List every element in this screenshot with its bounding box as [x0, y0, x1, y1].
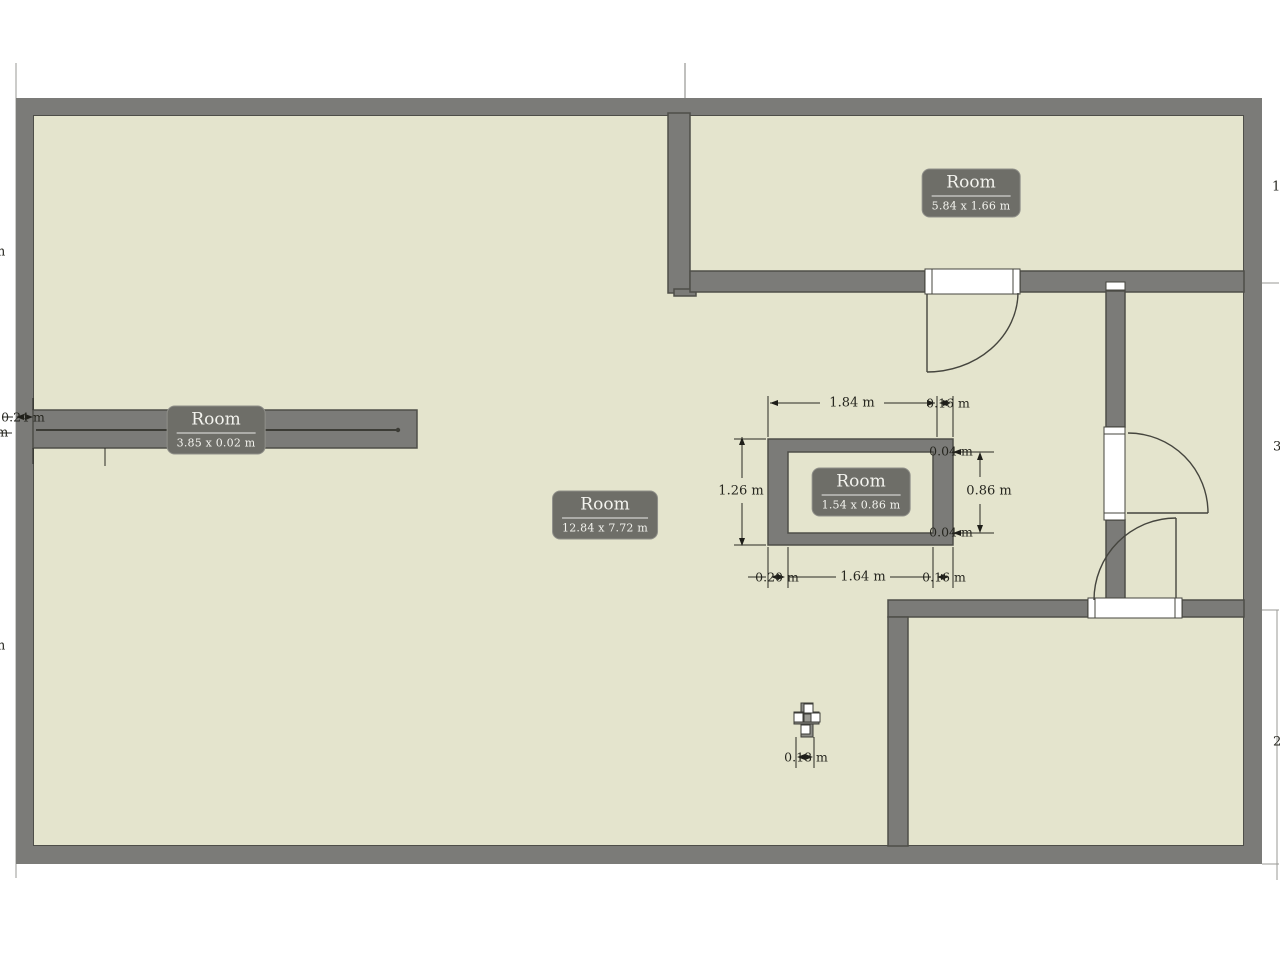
- wall-notch: [1106, 282, 1125, 290]
- room-name: Room: [177, 410, 256, 434]
- room-dimensions: 5.84 x 1.66 m: [932, 197, 1011, 213]
- dim-inner-right: 0.86 m: [966, 484, 1011, 499]
- room-dimensions: 1.54 x 0.86 m: [822, 496, 901, 512]
- edge-label-left-mid: m: [0, 426, 8, 441]
- dim-left-wall: 0.24 m: [1, 410, 45, 425]
- room-label-sliver[interactable]: Room 3.85 x 0.02 m: [167, 406, 266, 455]
- room-label-main[interactable]: Room 12.84 x 7.72 m: [552, 491, 658, 540]
- plan-viewport: Room 5.84 x 1.66 m Room 3.85 x 0.02 m Ro…: [0, 0, 1280, 960]
- dim-inner-bottom-left: 0.20 m: [755, 570, 799, 585]
- room-label-inner[interactable]: Room 1.54 x 0.86 m: [812, 468, 911, 517]
- dim-inner-right-bottom: 0.04 m: [929, 525, 973, 540]
- dim-inner-bottom-right: 0.16 m: [922, 570, 966, 585]
- room-name: Room: [562, 495, 648, 519]
- dim-inner-bottom: 1.64 m: [840, 570, 885, 585]
- edge-label-right-mid: 3: [1273, 440, 1280, 455]
- wall-bottomright-top-left: [888, 600, 1088, 617]
- dim-inner-top-right: 0.16 m: [926, 396, 970, 411]
- floor-main[interactable]: [33, 115, 1244, 846]
- room-name: Room: [932, 173, 1011, 197]
- room-dimensions: 12.84 x 7.72 m: [562, 519, 648, 535]
- wall-bottomright-left: [888, 617, 908, 846]
- wall-right-vertical-upper: [1106, 291, 1125, 427]
- dim-inner-left: 1.26 m: [718, 484, 763, 499]
- dim-inner-top: 1.84 m: [829, 396, 874, 411]
- edge-label-left-bottom: m: [0, 639, 5, 654]
- edge-label-right-bottom: 2: [1273, 735, 1280, 750]
- room-name: Room: [822, 472, 901, 496]
- sliver-line-end: [396, 428, 400, 432]
- edge-label-right-top: 1: [1272, 180, 1280, 195]
- wall-bottomright-top-right: [1182, 600, 1244, 617]
- dim-inner-right-top: 0.04 m: [929, 444, 973, 459]
- wall-top-center: [668, 113, 690, 293]
- wall-topright-bottom-left: [690, 271, 925, 292]
- edge-label-left-top: m: [0, 245, 5, 260]
- dim-object-width: 0.18 m: [784, 750, 828, 765]
- wall-right-vertical-lower: [1106, 520, 1125, 600]
- wall-topright-bottom-right: [1020, 271, 1244, 292]
- room-label-top-right[interactable]: Room 5.84 x 1.66 m: [922, 169, 1021, 218]
- floorplan-canvas: [0, 0, 1280, 960]
- room-dimensions: 3.85 x 0.02 m: [177, 434, 256, 450]
